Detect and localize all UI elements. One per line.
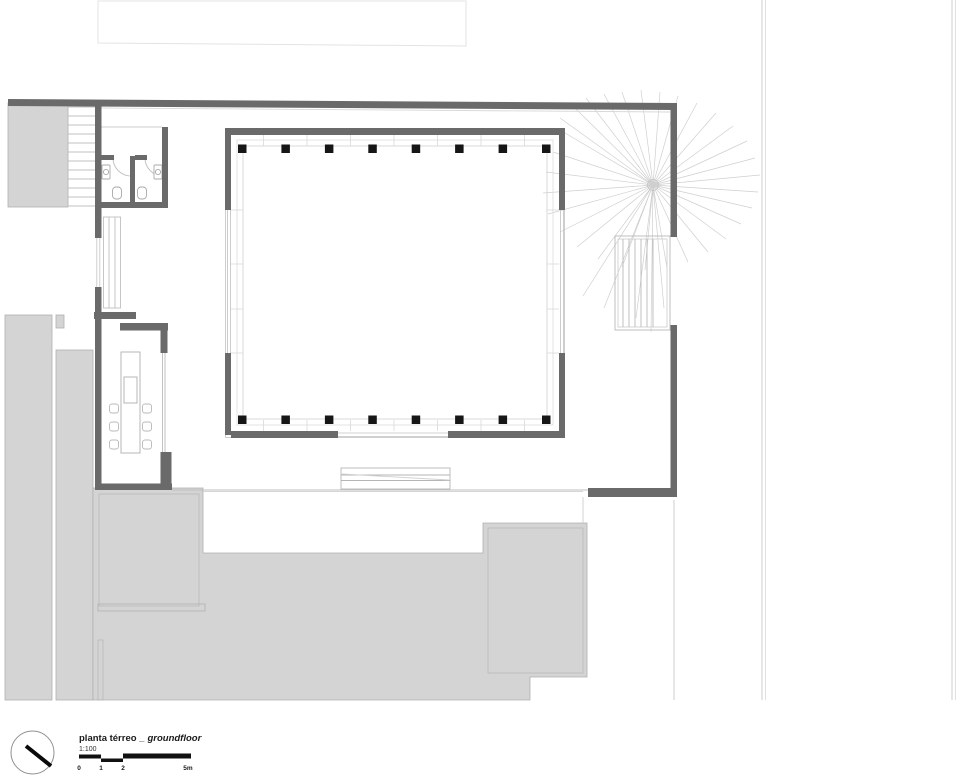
tree-branches — [543, 90, 760, 332]
scale-bar-label: 1 — [99, 765, 103, 772]
column — [368, 416, 377, 425]
column — [281, 416, 290, 425]
southeast-wall — [588, 488, 677, 497]
column — [455, 145, 464, 154]
scale-bar-segment — [101, 759, 123, 763]
column — [281, 145, 290, 154]
west-opening-glazing — [97, 238, 100, 287]
kitchen-window — [163, 353, 166, 452]
entry-ramp — [104, 217, 121, 308]
wc-east-wall — [162, 127, 168, 208]
scale-bar — [79, 754, 191, 763]
bench — [341, 468, 450, 489]
kitchen-north-wall-a — [94, 312, 136, 319]
neighbor-block — [8, 103, 68, 207]
courtyard — [226, 129, 565, 438]
kitchen-east-wall-lower — [161, 452, 172, 490]
east-wall-lower — [671, 325, 678, 488]
wc-partition — [130, 156, 135, 208]
kitchen-sink — [124, 377, 137, 403]
courtyard-columns — [238, 145, 551, 425]
scale-bar-segment — [79, 755, 101, 759]
drawing-scale: 1:100 — [79, 746, 97, 753]
door-swing — [113, 158, 131, 176]
scale-bar-label: 2 — [121, 765, 125, 772]
drawing-title: planta térreo _groundfloor — [79, 733, 203, 744]
east-wall-upper — [671, 103, 678, 237]
courtyard-east-wall — [559, 128, 565, 210]
column — [238, 416, 247, 425]
floor-plan-sheet: planta térreo _groundfloor 1:100 0 1 2 5… — [0, 0, 960, 776]
west-strip-tab — [56, 315, 64, 328]
column — [412, 416, 421, 425]
column — [455, 416, 464, 425]
floor-plan-drawing: planta térreo _groundfloor 1:100 0 1 2 5… — [0, 0, 960, 776]
courtyard-south-wall — [448, 431, 565, 438]
courtyard-band-inner — [243, 146, 547, 419]
context-masses — [5, 103, 587, 700]
path-band — [203, 492, 583, 524]
courtyard-glazing — [228, 210, 564, 437]
west-strip-a — [5, 315, 52, 700]
courtyard-band-outer — [237, 140, 553, 425]
column — [499, 145, 508, 154]
toilet — [138, 187, 147, 199]
scale-bar-label: 0 — [77, 765, 81, 772]
west-strip-b — [56, 350, 93, 700]
courtyard-outer-line — [226, 129, 565, 438]
scale-bar-segment — [123, 754, 191, 759]
column — [542, 416, 551, 425]
column — [325, 145, 334, 154]
terrace-low-wall — [98, 604, 205, 611]
courtyard-band-ticks — [231, 135, 559, 431]
neighbor-stair — [68, 107, 95, 206]
column — [542, 145, 551, 154]
west-wall-upper — [95, 100, 102, 238]
courtyard-south-wall — [231, 431, 338, 438]
scale-bar-label: 5m — [183, 765, 193, 772]
tree — [543, 90, 760, 332]
kitchen — [110, 352, 166, 453]
north-indicator-needle — [26, 746, 51, 766]
southwest-wall — [95, 484, 172, 491]
courtyard-west-wall — [225, 353, 231, 435]
column — [412, 145, 421, 154]
wc-front-wall — [135, 155, 147, 160]
title-block: planta térreo _groundfloor 1:100 0 1 2 5… — [11, 731, 203, 774]
column — [499, 416, 508, 425]
south-terrace — [93, 488, 587, 700]
column — [368, 145, 377, 154]
kitchen-east-wall-upper — [161, 330, 168, 353]
column — [325, 416, 334, 425]
courtyard-west-wall — [225, 128, 231, 210]
wc-front-wall — [101, 155, 114, 160]
kitchen-north-wall-b — [120, 323, 168, 331]
courtyard-north-wall — [227, 128, 565, 135]
ghost-plot-outline — [98, 1, 466, 46]
toilet — [113, 187, 122, 199]
courtyard-east-wall — [559, 353, 565, 435]
column — [238, 145, 247, 154]
